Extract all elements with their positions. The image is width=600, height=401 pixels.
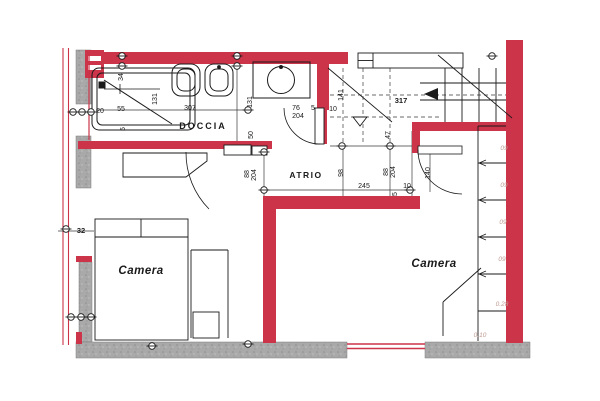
dim-307: 307 — [184, 105, 196, 112]
dim-76: 76 — [292, 105, 300, 112]
floor-plan-drawing: DOCCIA ATRIO Camera Camera 34 55 20 5 13… — [0, 0, 600, 401]
corner-lines-right — [443, 268, 481, 336]
note-09-4: 09 — [498, 256, 506, 263]
dim-131-left: 131 — [152, 93, 159, 105]
bathroom-fixtures — [92, 62, 310, 130]
room-label-camera-left: Camera — [118, 265, 163, 277]
dim-5-shower: 5 — [120, 127, 127, 131]
room-label-doccia: DOCCIA — [179, 121, 227, 131]
nightstand — [193, 312, 219, 338]
dim-5-right: 5 — [392, 192, 399, 196]
dim-10-right: 10 — [403, 183, 411, 190]
dim-140: 140 — [425, 167, 432, 179]
dim-88-left-door: 88 — [244, 170, 251, 178]
dim-98: 98 — [338, 169, 345, 177]
floor-plan-canvas: DOCCIA ATRIO Camera Camera 34 55 20 5 13… — [0, 0, 600, 401]
red-walls — [76, 40, 523, 349]
toilet — [205, 64, 233, 96]
furniture — [95, 126, 506, 341]
wall-atrio-camera-h — [263, 196, 420, 209]
dim-317: 317 — [395, 96, 408, 105]
room-label-camera-right: Camera — [411, 258, 456, 270]
note-09-3: 09 — [499, 219, 507, 226]
staircase — [328, 53, 512, 126]
room-label-atrio: ATRIO — [289, 170, 322, 180]
dim-47: 47 — [385, 131, 392, 139]
bed-left — [95, 219, 188, 340]
door-atrio — [284, 108, 324, 144]
note-028: 0.28 — [496, 301, 509, 308]
dim-204-left-door: 204 — [251, 169, 258, 181]
sink — [253, 62, 310, 98]
dim-10-atrio-door: 10 — [329, 106, 337, 113]
dim-5-atrio-door: 5 — [311, 105, 315, 112]
wardrobe-right — [478, 126, 506, 341]
note-09-1: 09 — [500, 145, 508, 152]
stair-break-line — [438, 55, 512, 118]
dresser-left — [123, 153, 207, 177]
section-marker-icon — [353, 117, 367, 126]
wall-camera-divider-v — [263, 196, 276, 343]
note-010: 0.10 — [474, 332, 487, 339]
wall-bath-stair-divider — [317, 52, 329, 110]
bidet — [172, 64, 200, 96]
stair-landing — [358, 53, 463, 68]
dim-50: 50 — [248, 131, 255, 139]
dim-245: 245 — [358, 183, 370, 190]
dim-204-right-door: 204 — [390, 166, 397, 178]
dim-20: 20 — [96, 108, 104, 115]
dim-204-atrio-door: 204 — [292, 113, 304, 120]
dim-55: 55 — [117, 106, 125, 113]
dim-131-right: 131 — [247, 96, 254, 108]
cabinet-left — [191, 250, 228, 338]
wall-right — [506, 40, 523, 343]
dim-88-right-door: 88 — [383, 168, 390, 176]
dim-34: 34 — [118, 73, 125, 81]
dim-141: 141 — [338, 89, 345, 101]
direction-arrow-icon — [424, 88, 438, 100]
dim-32: 32 — [77, 226, 85, 235]
wall-stair-atrio — [412, 122, 522, 131]
wall-top-left-cap — [85, 50, 104, 78]
note-09-2: 09 — [500, 182, 508, 189]
